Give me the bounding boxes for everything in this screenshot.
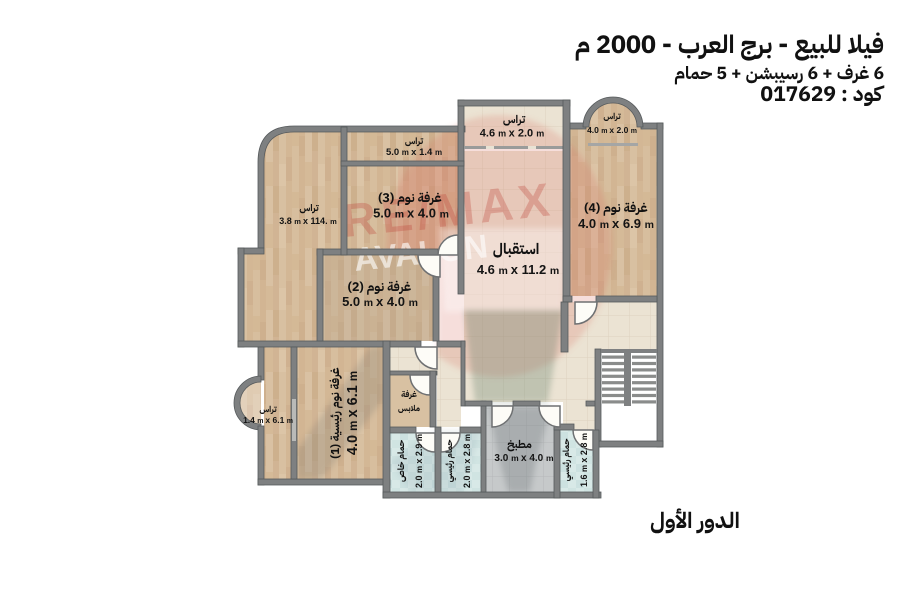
- svg-text:1.4 m x 6.1 m: 1.4 m x 6.1 m: [243, 415, 293, 425]
- svg-text:4.6 m x 2.0 m: 4.6 m x 2.0 m: [480, 128, 544, 140]
- svg-text:2.0 m x 2.8 m: 2.0 m x 2.8 m: [462, 434, 472, 488]
- svg-text:5.0 m x 1.4 m: 5.0 m x 1.4 m: [386, 147, 442, 158]
- svg-text:4.0 m x 6.9 m: 4.0 m x 6.9 m: [578, 216, 654, 231]
- svg-text:5.0 m x 4.0 m: 5.0 m x 4.0 m: [373, 206, 449, 221]
- svg-text:1.6 m x 2.8 m: 1.6 m x 2.8 m: [579, 433, 589, 487]
- svg-text:3.0 m x 4.0 m: 3.0 m x 4.0 m: [494, 453, 554, 464]
- svg-text:4.0 m x 6.1 m: 4.0 m x 6.1 m: [345, 371, 361, 455]
- svg-text:4.0 m x 2.0 m: 4.0 m x 2.0 m: [587, 125, 637, 135]
- svg-text:5.0 m x 4.0 m: 5.0 m x 4.0 m: [342, 294, 418, 309]
- svg-text:2.0 m x 2.9 m: 2.0 m x 2.9 m: [414, 434, 424, 488]
- svg-text:4.6 m x 11.2 m: 4.6 m x 11.2 m: [477, 262, 559, 277]
- svg-text:3.8 m x 114. m: 3.8 m x 114. m: [279, 216, 337, 226]
